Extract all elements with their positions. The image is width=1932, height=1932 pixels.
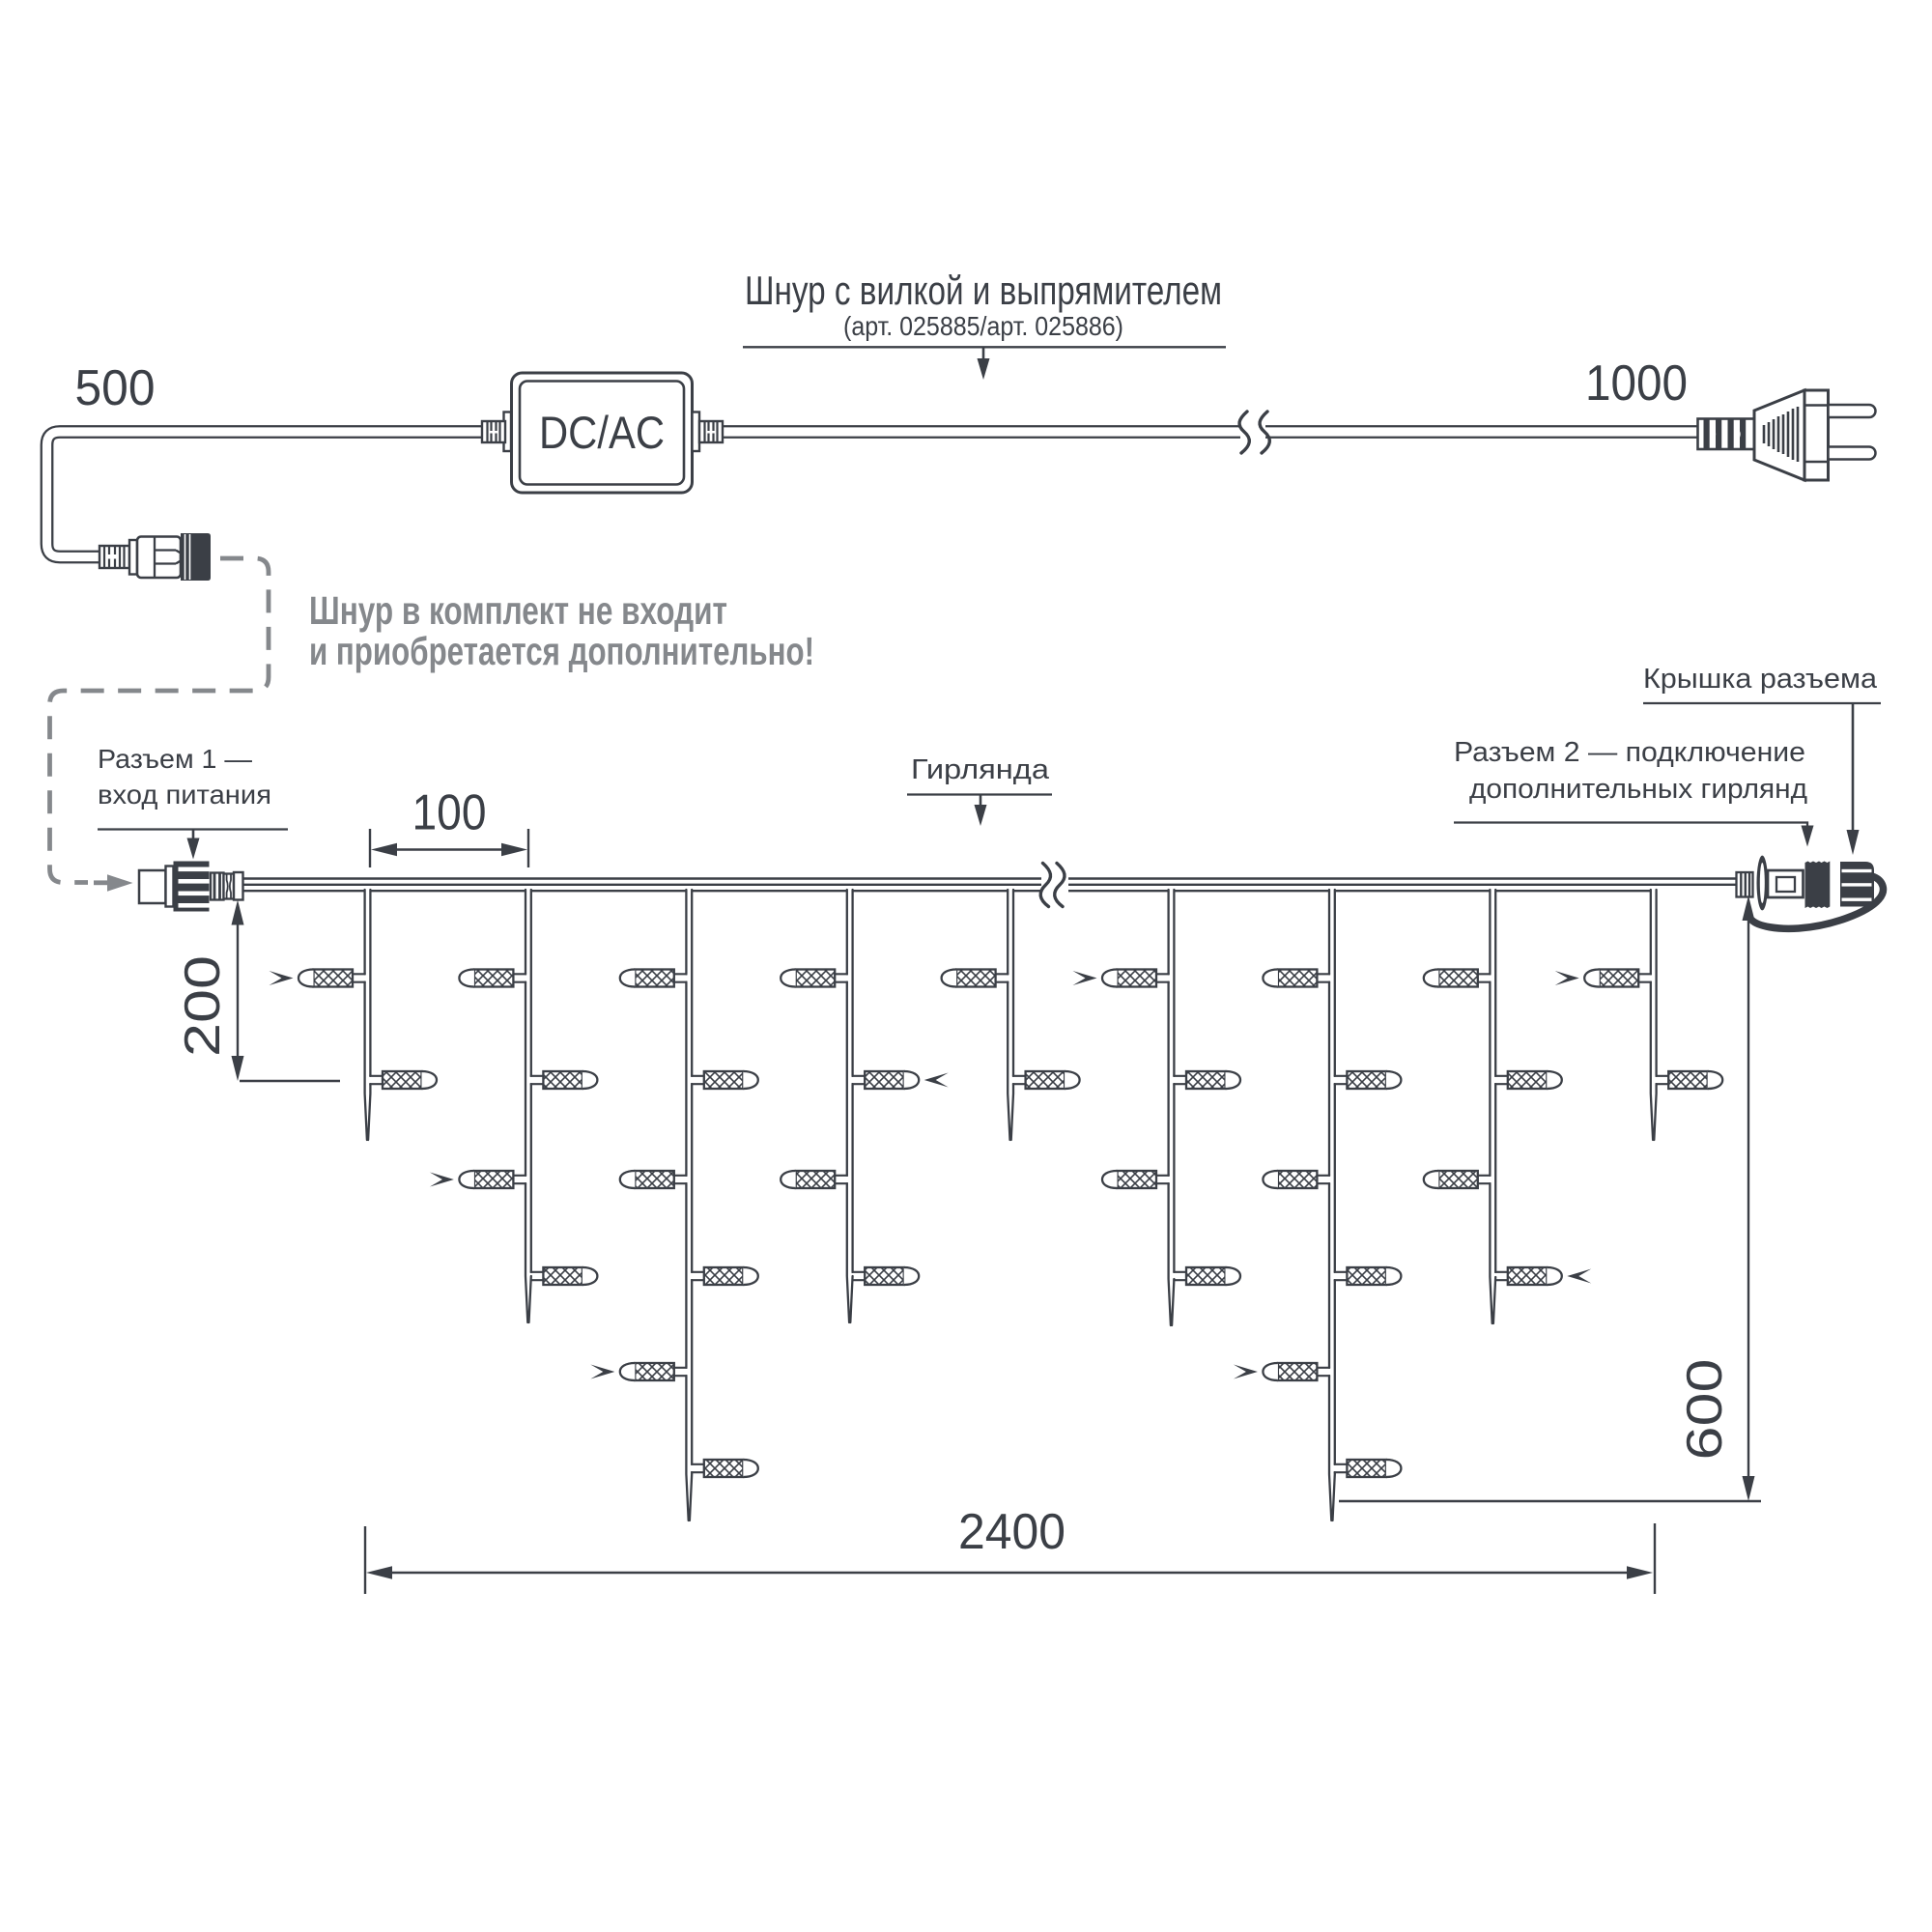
svg-text:Гирлянда: Гирлянда <box>911 754 1050 785</box>
svg-text:Шнур в комплект не входит: Шнур в комплект не входит <box>309 588 727 633</box>
svg-text:вход питания: вход питания <box>98 780 271 810</box>
svg-text:(арт. 025885/арт. 025886): (арт. 025885/арт. 025886) <box>843 311 1123 341</box>
svg-text:100: 100 <box>412 785 487 841</box>
svg-text:Разъем 2 — подключение: Разъем 2 — подключение <box>1454 737 1805 768</box>
svg-text:200: 200 <box>175 955 231 1057</box>
svg-text:и приобретается дополнительно!: и приобретается дополнительно! <box>309 629 814 673</box>
svg-text:DC/AC: DC/AC <box>539 407 665 458</box>
svg-text:Шнур с вилкой и выпрямителем: Шнур с вилкой и выпрямителем <box>745 268 1222 313</box>
svg-text:2400: 2400 <box>958 1504 1065 1560</box>
svg-text:Разъем 1 —: Разъем 1 — <box>98 744 252 774</box>
svg-text:Крышка разъема: Крышка разъема <box>1643 664 1878 695</box>
svg-text:600: 600 <box>1677 1359 1733 1461</box>
svg-text:дополнительных гирлянд: дополнительных гирлянд <box>1469 774 1807 805</box>
svg-text:1000: 1000 <box>1585 355 1688 412</box>
svg-text:500: 500 <box>75 360 156 416</box>
